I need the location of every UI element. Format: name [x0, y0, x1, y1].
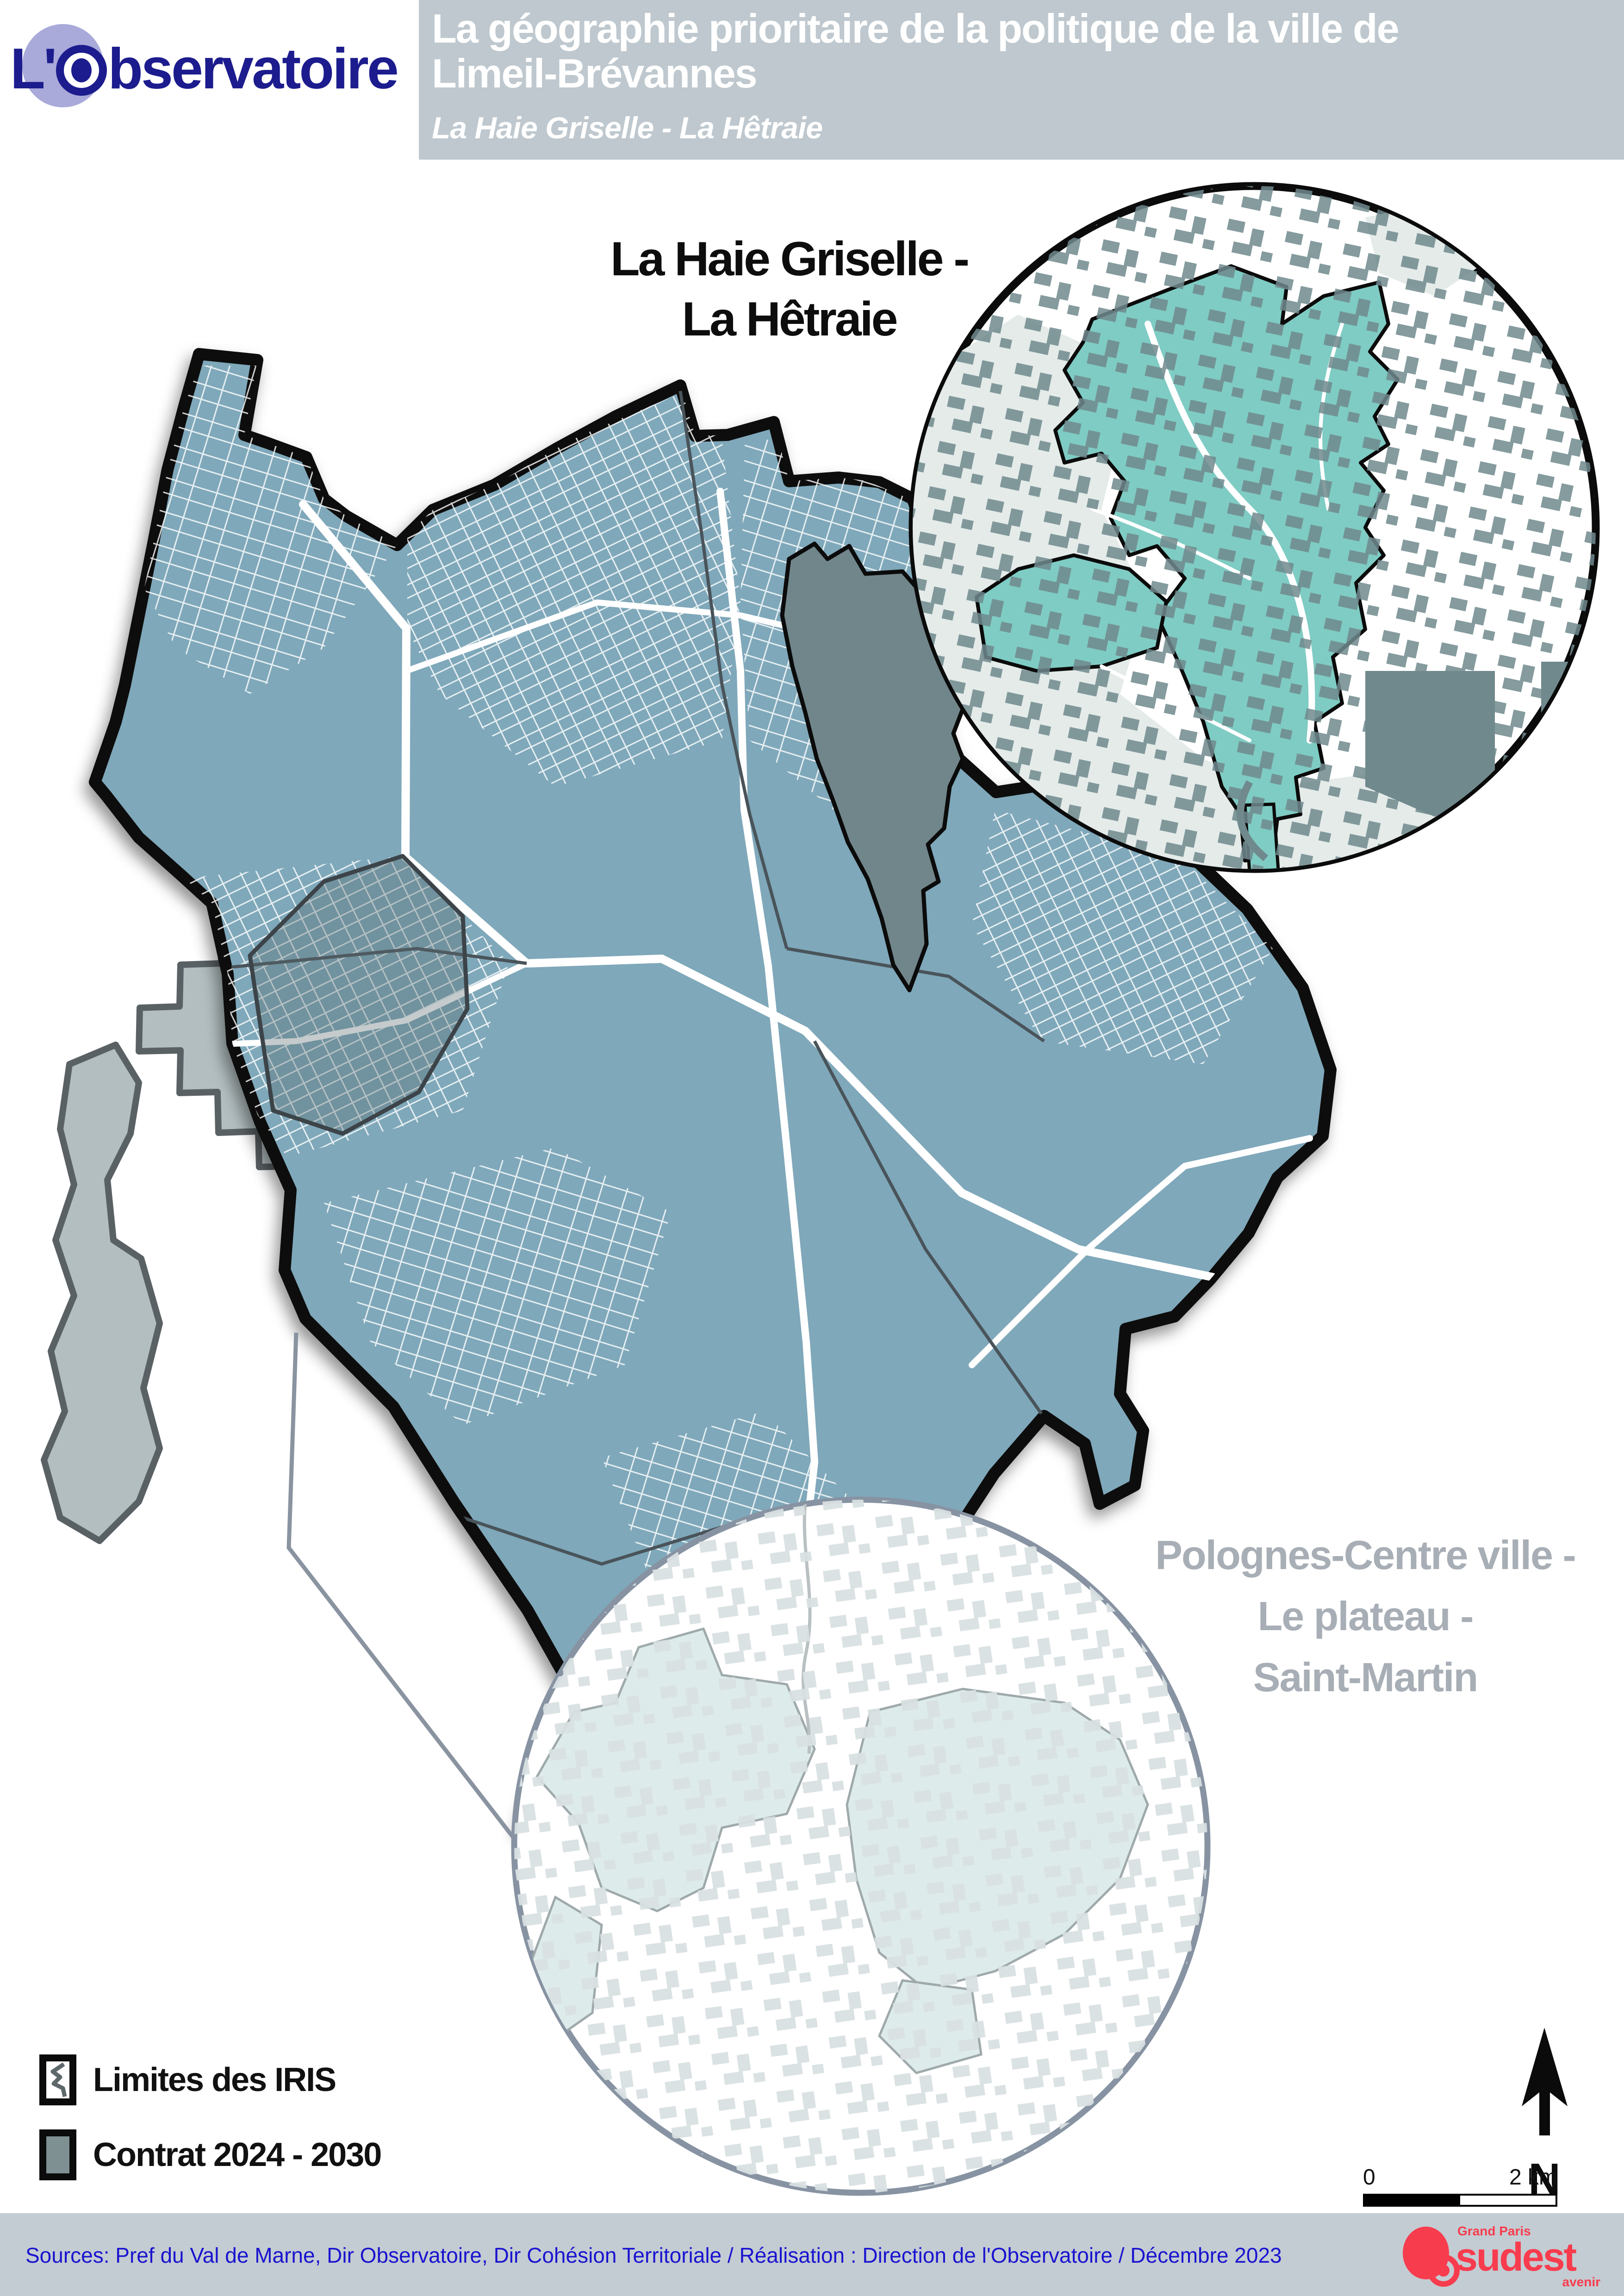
sudest-logo: Grand Paris sudest avenir	[1390, 2217, 1607, 2294]
logo-text: L'bservatoire	[10, 36, 397, 102]
inset-bottom-label-line3: Saint-Martin	[1134, 1647, 1597, 1708]
page-title-line2: Limeil-Brévannes	[432, 51, 1399, 96]
contract-swatch-icon	[39, 2129, 76, 2180]
header-band: La géographie prioritaire de la politiqu…	[419, 0, 1624, 160]
inset-bottom-label-line2: Le plateau -	[1134, 1586, 1597, 1647]
brand-tagline: avenir	[1562, 2275, 1601, 2289]
legend-label-iris: Limites des IRIS	[93, 2061, 336, 2099]
page-title: La géographie prioritaire de la politiqu…	[432, 6, 1399, 96]
footer-sources: Sources: Pref du Val de Marne, Dir Obser…	[25, 2243, 1282, 2268]
inset-top-label: La Haie Griselle - La Hêtraie	[572, 229, 1007, 349]
map-legend: Limites des IRIS Contrat 2024 - 2030	[39, 2054, 381, 2204]
page-subtitle: La Haie Griselle - La Hêtraie	[432, 110, 822, 145]
brand-name: sudest	[1456, 2235, 1577, 2279]
legend-item-contract: Contrat 2024 - 2030	[39, 2129, 381, 2180]
inset-bottom-label: Polognes-Centre ville - Le plateau - Sai…	[1134, 1525, 1597, 1708]
inset-bottom-label-line1: Polognes-Centre ville -	[1134, 1525, 1597, 1586]
scale-bar-graphic	[1363, 2194, 1557, 2207]
inset-top-circle	[907, 183, 1601, 875]
logo-prefix: L'	[10, 37, 55, 101]
scale-end: 2 km	[1509, 2165, 1557, 2190]
logo-o-icon	[56, 45, 107, 96]
inset-top-label-line1: La Haie Griselle -	[572, 229, 1007, 289]
inset-bottom-circle	[514, 1500, 1207, 2193]
scale-start: 0	[1363, 2165, 1375, 2190]
page-title-line1: La géographie prioritaire de la politiqu…	[432, 6, 1399, 51]
observatoire-logo: L'bservatoire	[0, 0, 419, 160]
scale-bar: 0 2 km	[1363, 2165, 1557, 2207]
logo-suffix: bservatoire	[108, 37, 397, 101]
iris-swatch-icon	[39, 2054, 76, 2105]
legend-item-iris: Limites des IRIS	[39, 2054, 381, 2105]
legend-label-contract: Contrat 2024 - 2030	[93, 2136, 381, 2174]
header: L'bservatoire La géographie prioritaire …	[0, 0, 1624, 160]
inset-top-label-line2: La Hêtraie	[572, 289, 1007, 349]
footer: Sources: Pref du Val de Marne, Dir Obser…	[0, 2213, 1624, 2296]
